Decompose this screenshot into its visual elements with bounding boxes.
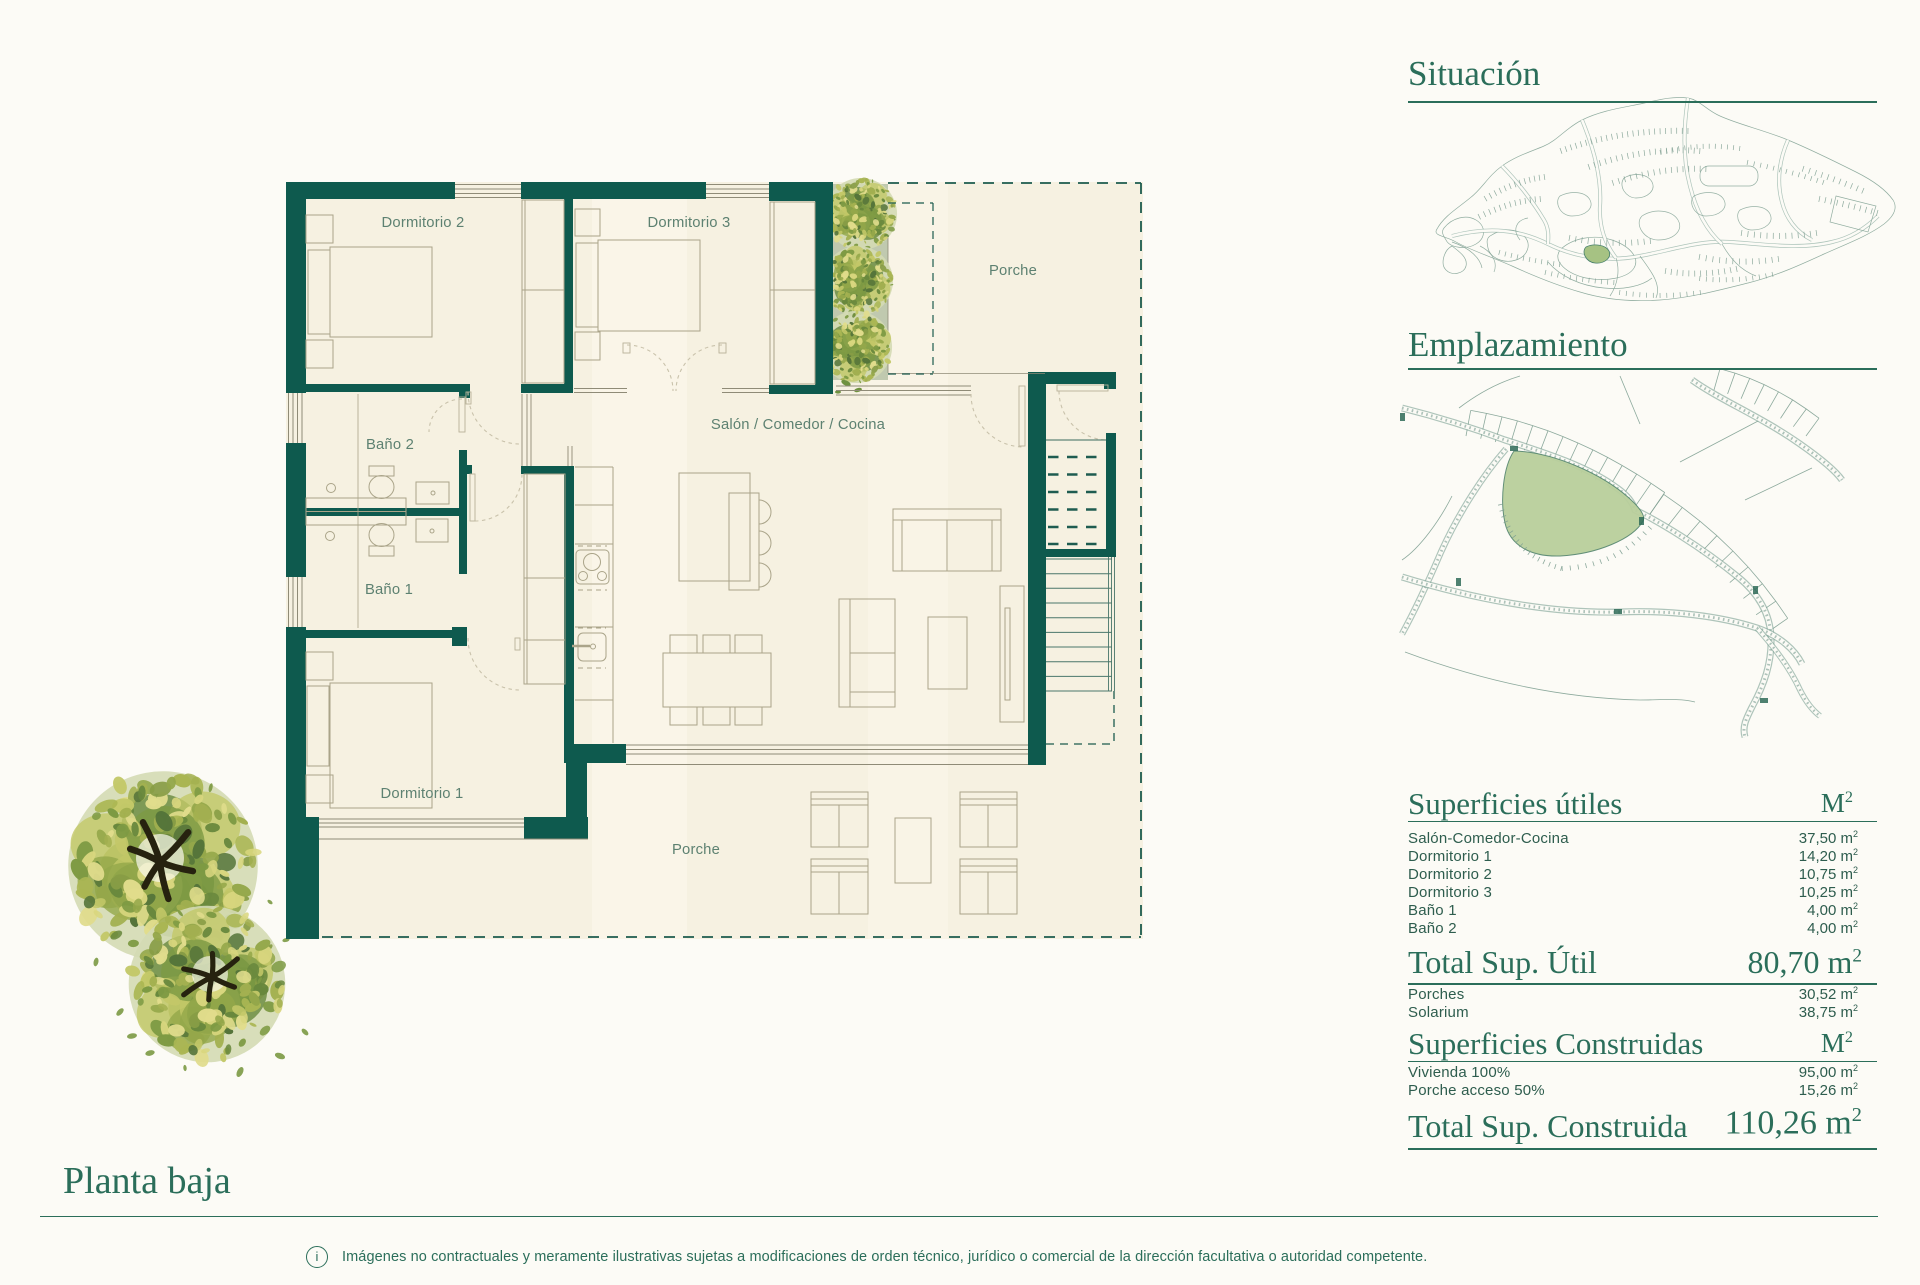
svg-text:Baño 1: Baño 1 [365,582,413,598]
svg-text:Dormitorio 3: Dormitorio 3 [648,215,731,231]
svg-text:Baño 2: Baño 2 [366,437,414,453]
svg-text:Porche: Porche [989,263,1037,279]
svg-text:Dormitorio 2: Dormitorio 2 [382,215,465,231]
svg-text:Salón / Comedor / Cocina: Salón / Comedor / Cocina [711,417,886,433]
svg-text:Dormitorio 1: Dormitorio 1 [381,786,464,802]
svg-text:Porche: Porche [672,842,720,858]
